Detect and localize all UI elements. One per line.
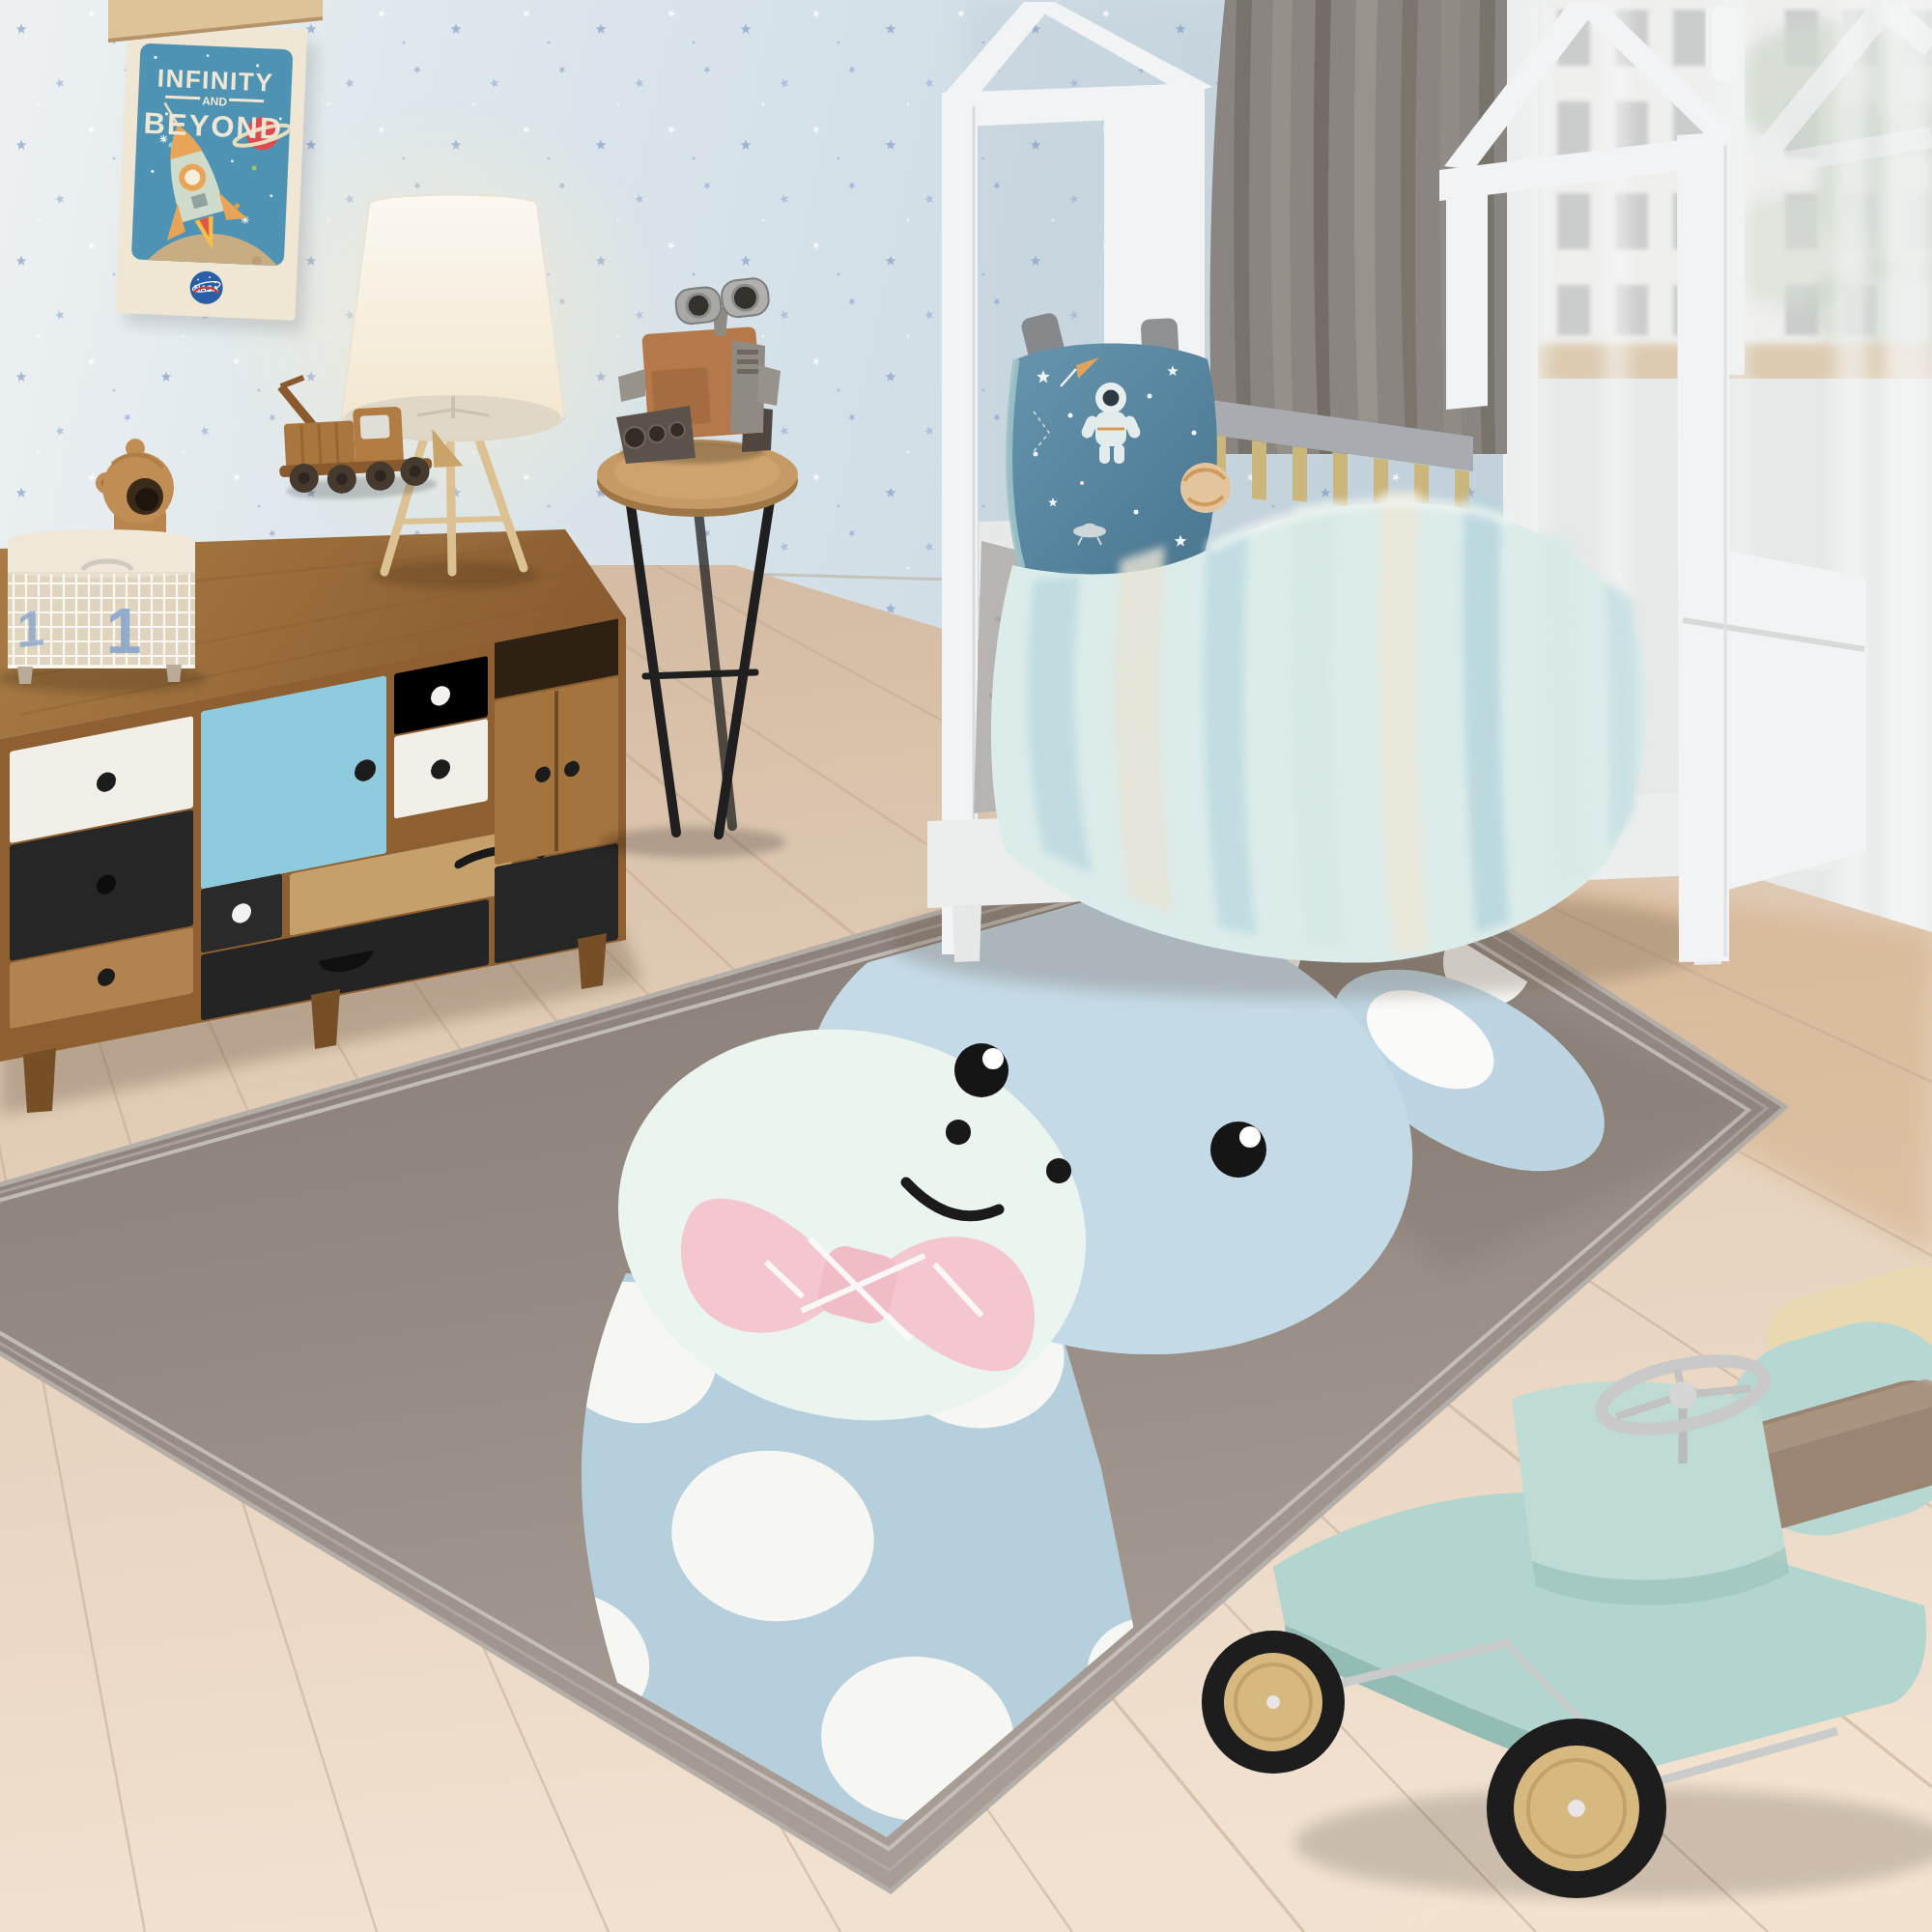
- basket-foot: [166, 665, 182, 682]
- robot-arm-right: [757, 365, 781, 406]
- poster-title-line1: INFINITY: [156, 63, 274, 97]
- car-console: [1512, 1381, 1785, 1580]
- car-wheel-front: [1202, 1631, 1345, 1774]
- robot-vents: [737, 350, 758, 374]
- truck-window: [359, 414, 389, 440]
- cabinet-door-blue: [201, 675, 386, 889]
- planet-print: [1180, 463, 1231, 513]
- basket-number-side: 1: [17, 599, 45, 658]
- basket-liner: [8, 529, 195, 578]
- bedroom-photo: 1 1: [0, 0, 1932, 1932]
- giraffe-nostril-right: [1046, 1158, 1071, 1183]
- bed-foot-panel: [1679, 541, 1866, 903]
- space-pillow: [1008, 344, 1231, 581]
- giraffe-nostril-left: [946, 1120, 971, 1145]
- basket-foot: [17, 667, 33, 684]
- car-wheel-rear: [1487, 1719, 1666, 1898]
- poster-title-line2: AND: [202, 94, 228, 108]
- giraffe-eye-right: [1210, 1122, 1266, 1178]
- poster-title-line3: BEYOND: [143, 106, 284, 146]
- bed-foot-post-left: [1446, 168, 1488, 410]
- basket-number-front: 1: [106, 595, 142, 667]
- table-shadow: [601, 827, 786, 858]
- bed-leg-left: [952, 904, 981, 962]
- scene-svg: 1 1: [0, 0, 1932, 1932]
